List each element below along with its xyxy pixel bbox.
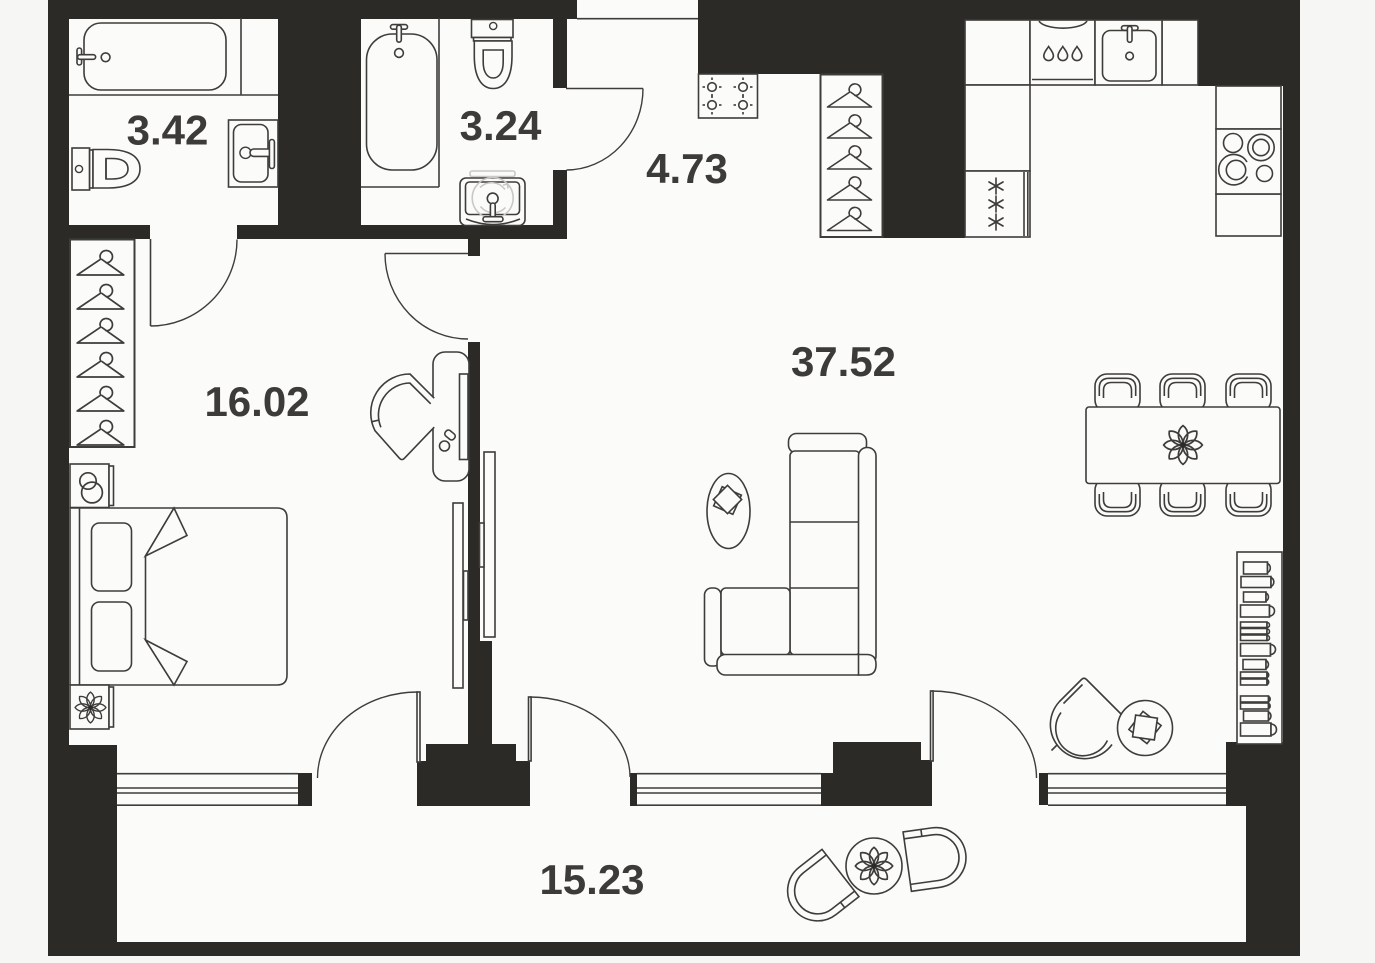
svg-text:4.73: 4.73 (646, 145, 728, 192)
svg-text:16.02: 16.02 (204, 378, 309, 425)
svg-text:3.24: 3.24 (460, 102, 542, 149)
svg-text:3.42: 3.42 (127, 107, 209, 154)
svg-text:15.23: 15.23 (539, 856, 644, 903)
svg-text:37.52: 37.52 (791, 338, 896, 385)
